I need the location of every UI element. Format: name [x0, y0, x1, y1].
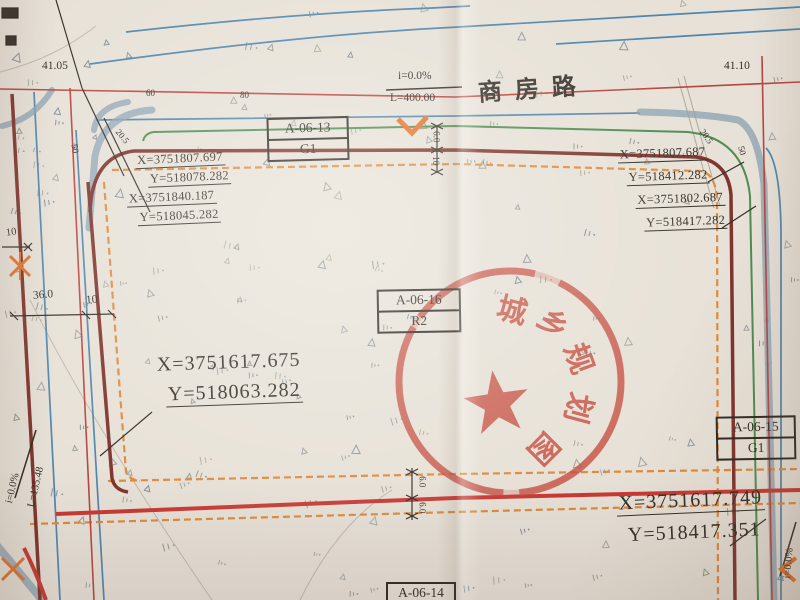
width-dim: 10 — [85, 294, 98, 307]
coord-y: Y=518417.282 — [644, 214, 728, 232]
spot-elevation-right: 41.10 — [724, 60, 750, 72]
parcel-code: A-06-13 — [268, 118, 347, 141]
width-dim: 36.0 — [33, 288, 54, 302]
road-length-label: L=400.00 — [390, 92, 435, 104]
parcel-use: R2 — [379, 311, 459, 331]
chainage-label: 60 — [146, 89, 155, 98]
coord-x: X=3751807.687 — [618, 145, 708, 163]
parcel-label-a0613: A-06-13 G1 — [266, 116, 349, 162]
offset-dim: 6.0 — [431, 131, 440, 142]
road-slope-label: i=0.0% — [398, 70, 432, 82]
width-dim: 10 — [5, 226, 17, 238]
spot-elevation-left: 41.05 — [42, 60, 68, 72]
parcel-label-a0616: A-06-16 R2 — [377, 288, 462, 333]
offset-dim: 10 — [431, 156, 440, 165]
offset-dim: 6.0 — [417, 476, 426, 487]
coord-x: X=3751802.687 — [635, 191, 725, 209]
coord-y: Y=518412.282 — [626, 168, 710, 186]
parcel-label-a0614: A-06-14 — [386, 582, 456, 600]
parcel-code: A-06-15 — [718, 417, 794, 439]
parcel-use: G1 — [718, 438, 794, 458]
parcel-label-a0615: A-06-15 G1 — [716, 415, 797, 460]
offset-dim: 6.0 — [417, 502, 426, 513]
parcel-use: G1 — [269, 139, 347, 160]
curve-radius-label: 50 — [69, 143, 80, 154]
parcel-code: A-06-14 — [388, 584, 454, 600]
stamp-star-icon — [460, 366, 533, 436]
chainage-label: 80 — [240, 91, 249, 100]
parcel-code: A-06-16 — [379, 290, 459, 312]
planning-map: 41.05 41.10 i=0.0% L=400.00 商房路 60 80 20… — [0, 0, 800, 600]
flow-arrow-icon — [398, 117, 427, 133]
coord-y: Y=518063.282 — [166, 380, 303, 408]
